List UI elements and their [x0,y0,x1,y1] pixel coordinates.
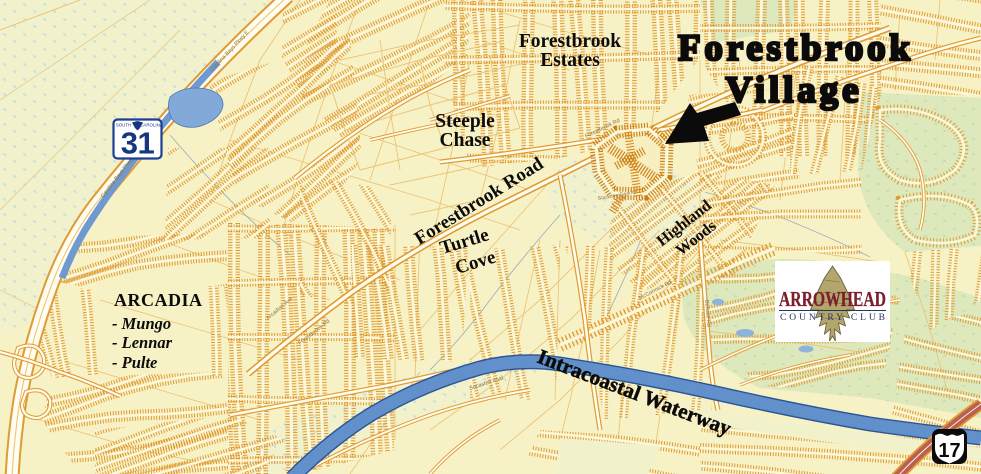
svg-text:SOUTH: SOUTH [116,123,131,128]
svg-text:- Lennar: - Lennar [112,333,173,352]
svg-text:Estates: Estates [540,50,600,71]
svg-text:- Mungo: - Mungo [112,314,171,333]
svg-text:ARROWHEAD: ARROWHEAD [779,287,886,311]
svg-text:17: 17 [938,440,960,462]
svg-text:- Pulte: - Pulte [112,353,157,372]
svg-text:COUNTRY CLUB: COUNTRY CLUB [780,313,885,323]
svg-text:Forestbrook: Forestbrook [519,31,621,52]
svg-text:ARCADIA: ARCADIA [114,290,203,310]
svg-text:Steeple: Steeple [435,111,495,132]
svg-text:Chase: Chase [440,130,491,151]
svg-text:Forestbrook: Forestbrook [678,28,910,69]
svg-text:CAROLINA: CAROLINA [140,123,163,128]
svg-text:31: 31 [121,126,155,161]
